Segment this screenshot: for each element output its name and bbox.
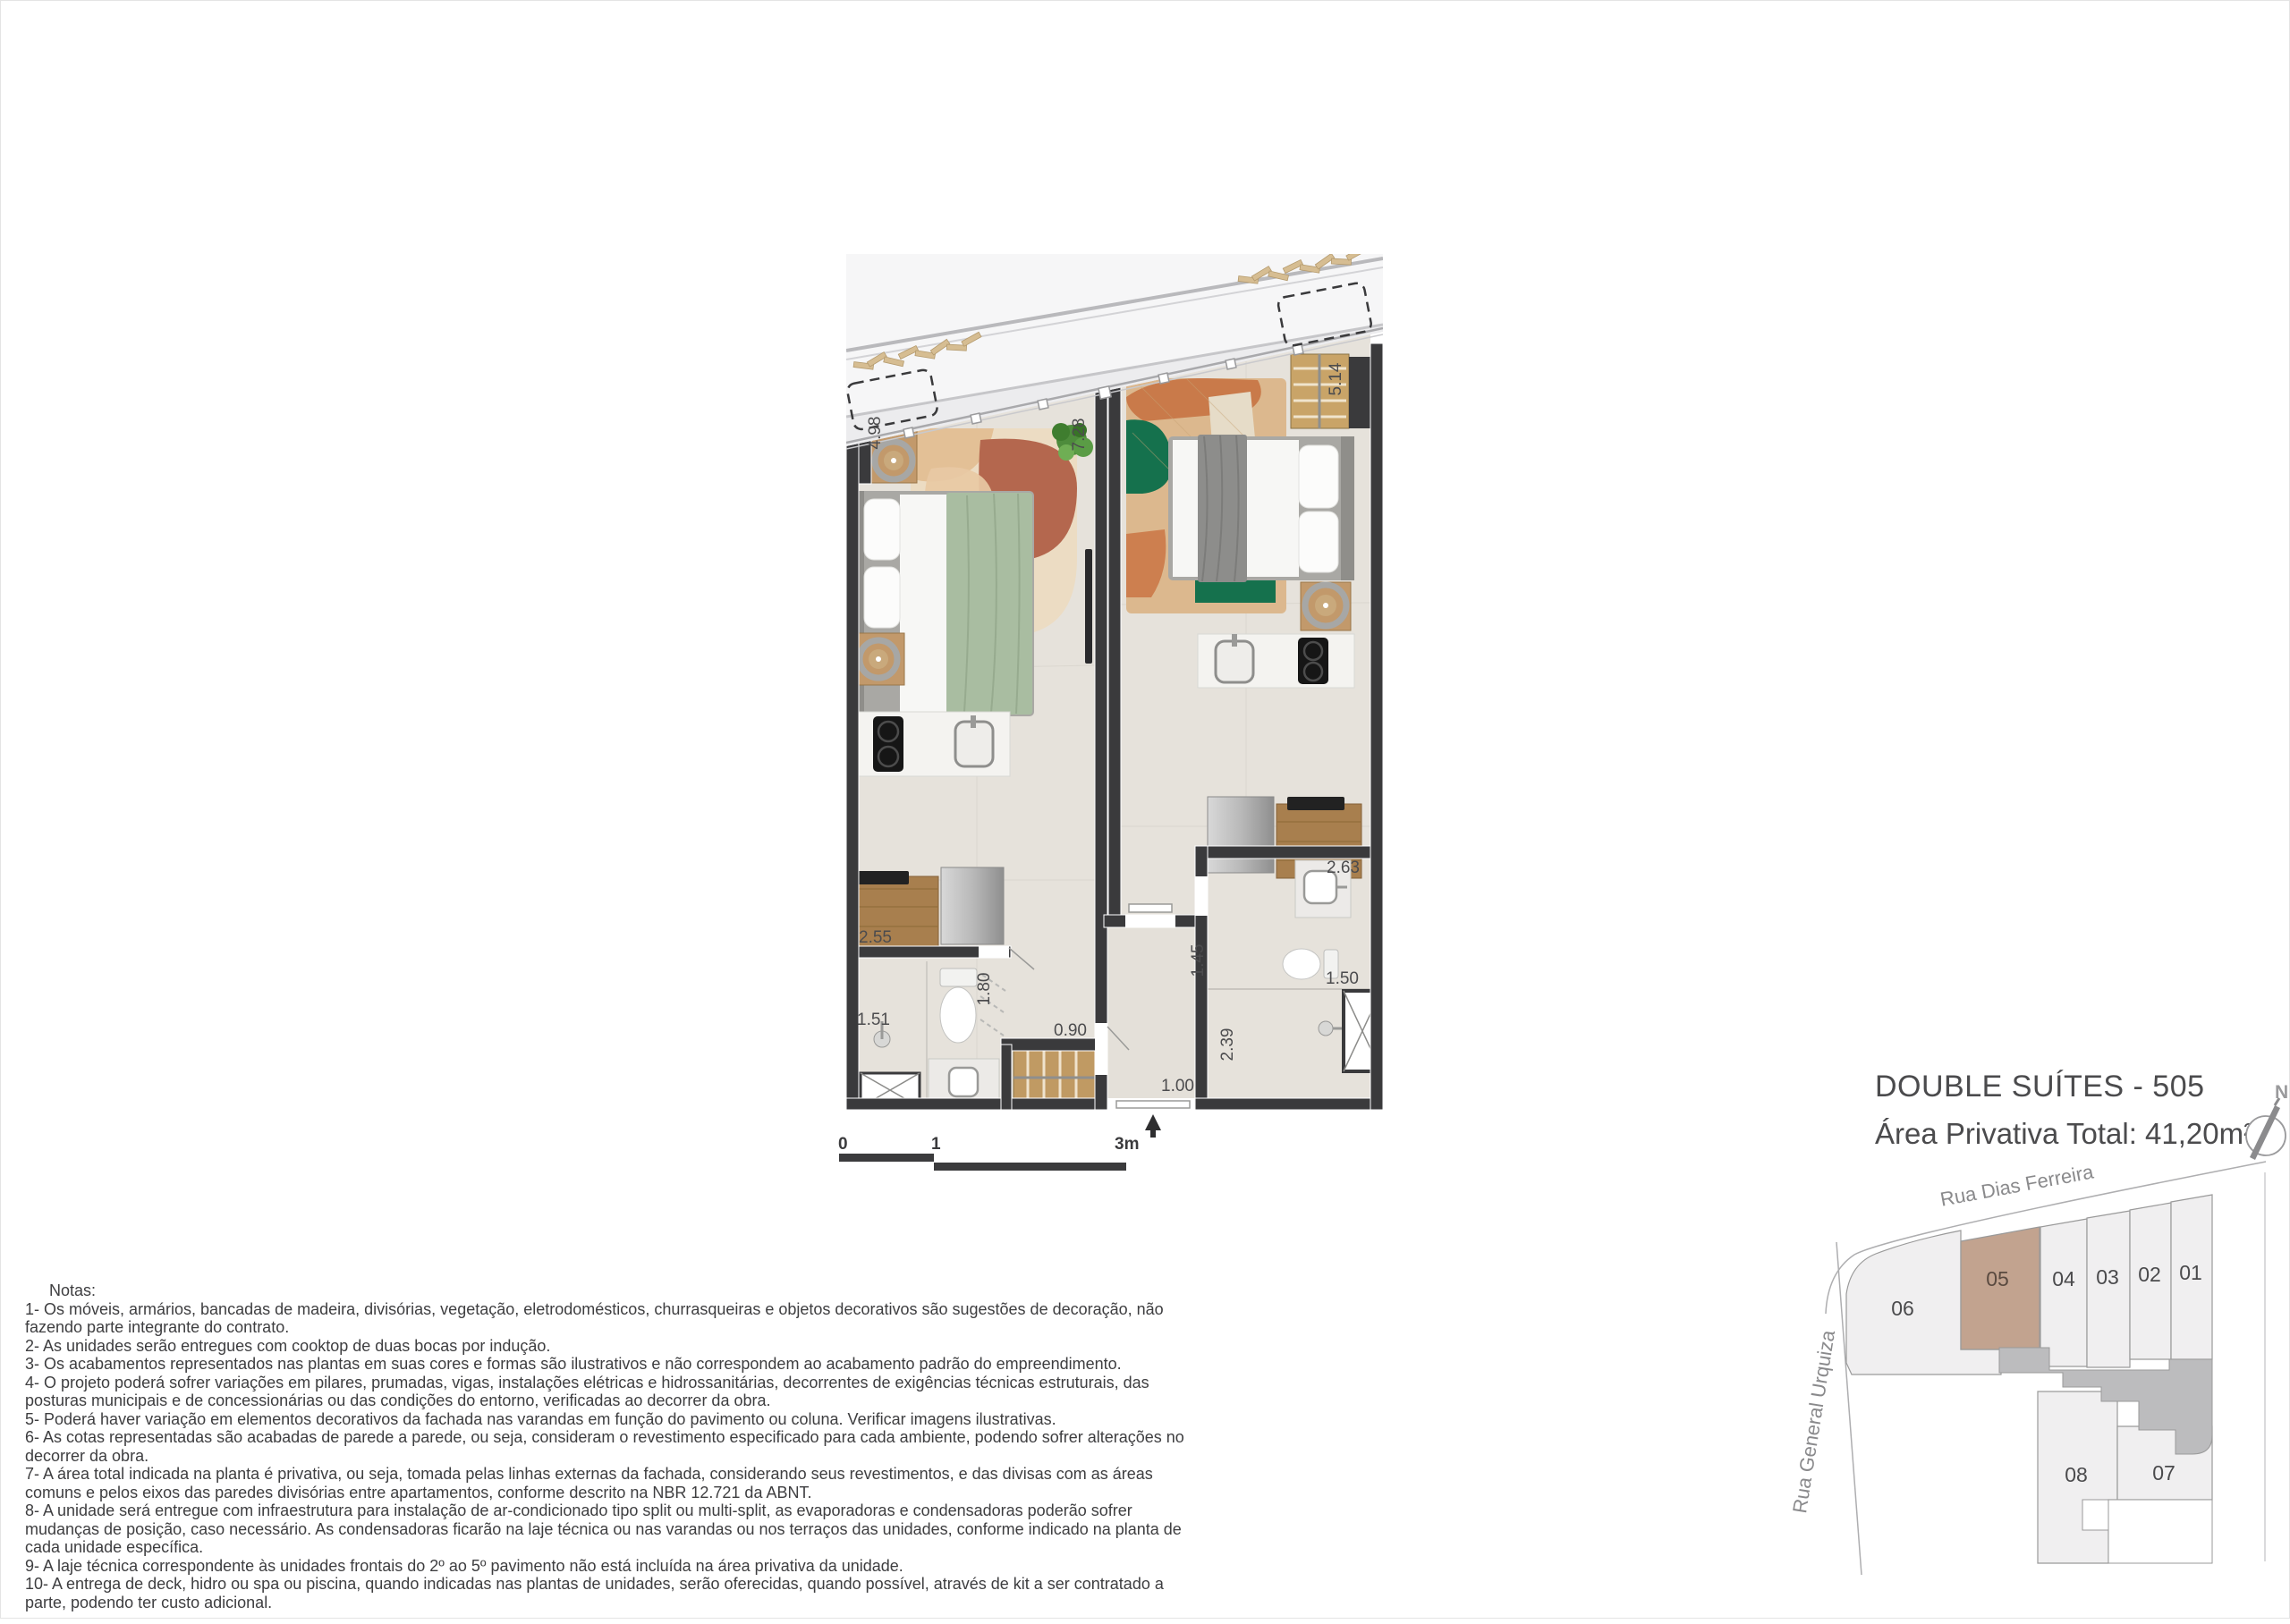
note-item-7: 7- A área total indicada na planta é pri… xyxy=(25,1465,1188,1501)
site-label-01: 01 xyxy=(2179,1261,2202,1284)
scale-bar: 0 1 3m xyxy=(833,1135,1155,1188)
page-subtitle: Área Privativa Total: 41,20m² xyxy=(1875,1117,2251,1151)
dim-1-50: 1.50 xyxy=(1326,969,1359,988)
site-location-map: Rua Dias Ferreira Rua General Urquiza 06… xyxy=(1790,1155,2290,1620)
scale-tick-1: 1 xyxy=(931,1135,941,1155)
page-title: DOUBLE SUÍTES - 505 xyxy=(1875,1070,2251,1104)
left-nightstand-bottom xyxy=(852,633,904,685)
note-item-3: 3- Os acabamentos representados nas plan… xyxy=(25,1355,1188,1374)
floor-plan-drawing: 4.98 7.28 5.14 2.55 2.63 1.51 1.80 0.90 … xyxy=(846,254,1383,1175)
notes-heading: Notas: xyxy=(25,1281,1188,1300)
note-item-5: 5- Poderá haver variação em elementos de… xyxy=(25,1410,1188,1429)
site-label-08: 08 xyxy=(2065,1463,2088,1486)
note-item-2: 2- As unidades serão entregues com cookt… xyxy=(25,1337,1188,1356)
scale-bar-segment-2 xyxy=(934,1163,1126,1171)
left-closet xyxy=(1014,1051,1095,1105)
site-service-box-large xyxy=(2108,1500,2212,1563)
left-kitchen-counter xyxy=(853,712,1010,776)
right-bed xyxy=(1168,435,1354,582)
floor-plan: 4.98 7.28 5.14 2.55 2.63 1.51 1.80 0.90 … xyxy=(846,254,1383,1175)
left-tv xyxy=(1085,549,1092,664)
dim-2-39: 2.39 xyxy=(1218,1028,1237,1062)
site-service-box-small xyxy=(2082,1500,2108,1530)
left-fridge xyxy=(941,867,1004,944)
dim-1-45: 1.45 xyxy=(1189,944,1208,977)
scale-tick-3m: 3m xyxy=(1115,1135,1139,1155)
site-label-07: 07 xyxy=(2152,1461,2175,1484)
page: { "header": { "title": "DOUBLE SUÍTES - … xyxy=(0,0,2290,1619)
dim-1-51: 1.51 xyxy=(857,1011,890,1029)
entry-hall-floor xyxy=(1107,927,1195,1098)
dim-5-14: 5.14 xyxy=(1327,362,1345,395)
notes-block: Notas: 1- Os móveis, armários, bancadas … xyxy=(25,1281,1188,1611)
site-label-05: 05 xyxy=(1986,1267,2009,1290)
dim-2-63: 2.63 xyxy=(1327,859,1360,877)
dim-2-55: 2.55 xyxy=(859,928,892,947)
title-block: DOUBLE SUÍTES - 505 Área Privativa Total… xyxy=(1875,1070,2251,1151)
note-item-6: 6- As cotas representadas são acabadas d… xyxy=(25,1428,1188,1465)
note-item-1: 1- Os móveis, armários, bancadas de made… xyxy=(25,1300,1188,1337)
dim-1-00: 1.00 xyxy=(1161,1077,1194,1095)
site-unit-04 xyxy=(2040,1219,2087,1366)
right-nightstand xyxy=(1301,582,1351,630)
dim-7-28: 7.28 xyxy=(1070,419,1089,452)
site-label-06: 06 xyxy=(1891,1297,1914,1320)
site-label-02: 02 xyxy=(2138,1263,2161,1286)
dim-1-80: 1.80 xyxy=(975,973,994,1006)
right-kitchen-counter xyxy=(1198,634,1354,688)
note-item-10: 10- A entrega de deck, hidro ou spa ou p… xyxy=(25,1575,1188,1611)
right-fridge xyxy=(1208,797,1274,873)
dim-4-98: 4.98 xyxy=(866,417,885,450)
note-item-9: 9- A laje técnica correspondente às unid… xyxy=(25,1557,1188,1576)
site-unit-03 xyxy=(2087,1211,2130,1367)
site-label-03: 03 xyxy=(2096,1265,2119,1289)
site-label-04: 04 xyxy=(2052,1267,2075,1290)
note-item-4: 4- O projeto poderá sofrer variações em … xyxy=(25,1374,1188,1410)
note-item-8: 8- A unidade será entregue com infraestr… xyxy=(25,1501,1188,1557)
street-label-dias-ferreira: Rua Dias Ferreira xyxy=(1938,1160,2096,1210)
scale-bar-segment-1 xyxy=(839,1154,934,1162)
dim-0-90: 0.90 xyxy=(1054,1021,1087,1040)
street-label-general-urquiza: Rua General Urquiza xyxy=(1790,1328,1839,1515)
scale-tick-0: 0 xyxy=(838,1135,848,1155)
